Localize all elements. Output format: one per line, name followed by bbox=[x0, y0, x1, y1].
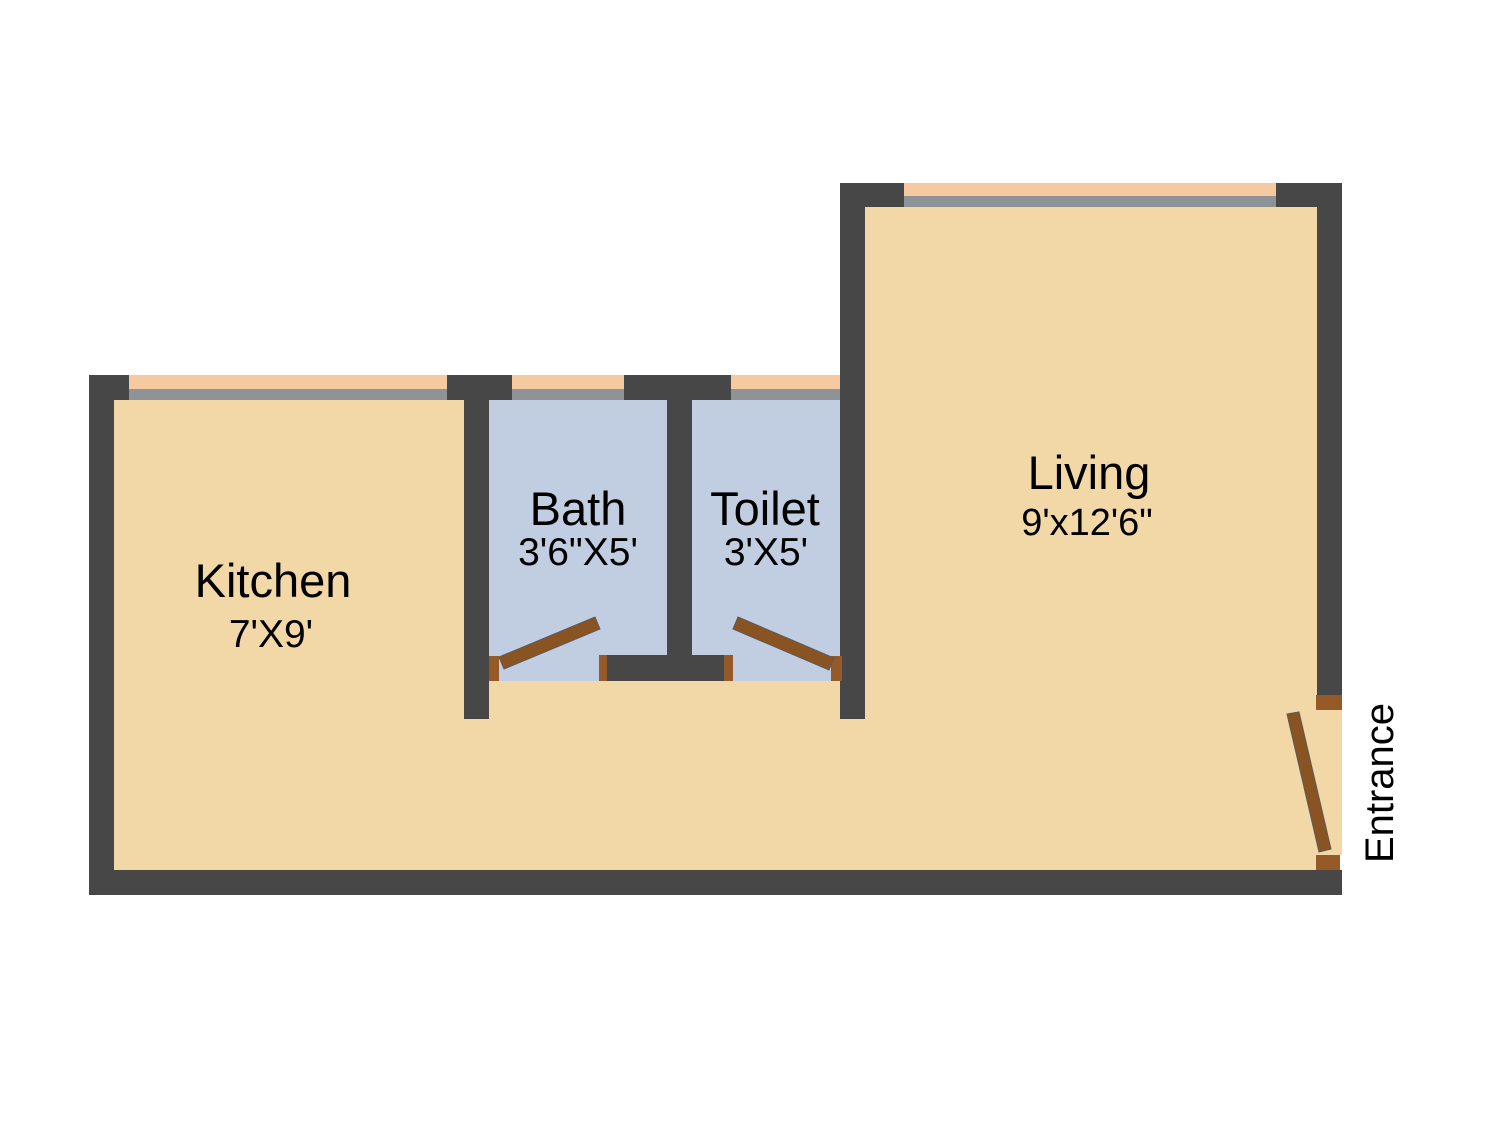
svg-text:9'x12'6": 9'x12'6" bbox=[1021, 502, 1153, 544]
svg-text:3'X5': 3'X5' bbox=[724, 531, 808, 574]
svg-text:Entrance: Entrance bbox=[1358, 703, 1402, 863]
svg-text:7'X9': 7'X9' bbox=[229, 613, 313, 656]
svg-text:3'6"X5': 3'6"X5' bbox=[518, 531, 638, 574]
svg-text:Kitchen: Kitchen bbox=[195, 554, 352, 607]
svg-text:Living: Living bbox=[1028, 446, 1151, 499]
svg-text:Toilet: Toilet bbox=[710, 482, 820, 535]
svg-text:Bath: Bath bbox=[530, 482, 627, 535]
